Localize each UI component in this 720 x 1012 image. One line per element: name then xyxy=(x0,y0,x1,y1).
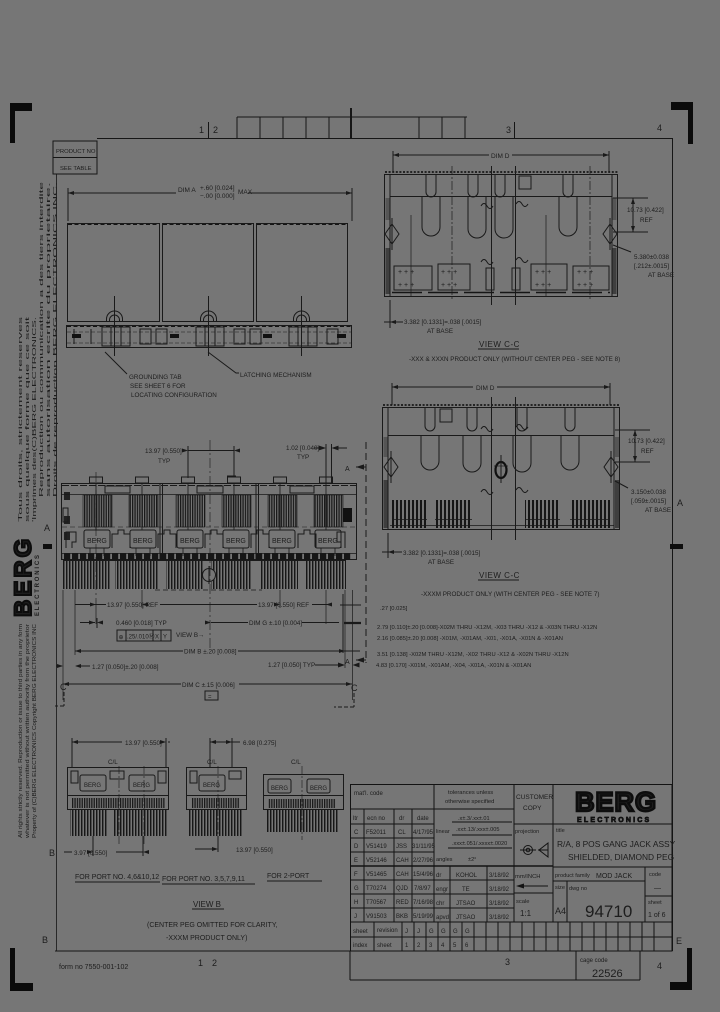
svg-text:sous quelque forme que ce: sous quelque forme que ce soit xyxy=(25,316,31,522)
svg-text:REF: REF xyxy=(641,448,654,455)
svg-text:SEE TABLE: SEE TABLE xyxy=(60,166,92,172)
svg-text:engr: engr xyxy=(436,887,448,893)
svg-text:13.97 [0.550] REF: 13.97 [0.550] REF xyxy=(107,602,158,609)
svg-text:BKB: BKB xyxy=(396,914,408,920)
svg-text:4: 4 xyxy=(657,961,662,971)
svg-text:mat'l. code: mat'l. code xyxy=(354,791,383,797)
svg-text:T70567: T70567 xyxy=(366,900,387,906)
svg-text:RED: RED xyxy=(396,900,409,906)
svg-text:7/8/97: 7/8/97 xyxy=(414,886,431,892)
svg-text:3/18/92: 3/18/92 xyxy=(489,915,510,921)
svg-text:product family: product family xyxy=(555,873,590,879)
svg-text:.x±.3/.xx±.01: .x±.3/.xx±.01 xyxy=(458,816,490,822)
svg-text:sans autorisation ecrite du: sans autorisation ecrite du proprietaire… xyxy=(46,182,52,497)
svg-text:SEE SHEET 6 FOR: SEE SHEET 6 FOR xyxy=(130,383,186,390)
svg-text:BERG: BERG xyxy=(180,538,200,545)
svg-text:J: J xyxy=(405,929,408,935)
svg-text:1:1: 1:1 xyxy=(520,909,532,918)
svg-text:DIM C ±.15 [0.006]: DIM C ±.15 [0.006] xyxy=(182,682,235,689)
svg-text:date: date xyxy=(417,816,429,822)
svg-text:10.73 [0.422]: 10.73 [0.422] xyxy=(627,207,664,214)
svg-text:VIEW B→: VIEW B→ xyxy=(176,632,204,639)
svg-text:chr: chr xyxy=(436,901,444,907)
svg-text:+ + +: + + + xyxy=(535,269,551,276)
svg-text:BERG: BERG xyxy=(87,538,107,545)
svg-text:ltr: ltr xyxy=(353,816,358,822)
svg-text:13.97 [0.550]: 13.97 [0.550] xyxy=(145,448,182,455)
svg-text:whatever is not permitted: whatever is not permitted without writte… xyxy=(25,624,31,840)
svg-text:1: 1 xyxy=(199,125,204,135)
svg-text:AT BASE: AT BASE xyxy=(648,272,674,279)
svg-text:=: = xyxy=(208,695,212,701)
svg-text:3.97 [0.550]: 3.97 [0.550] xyxy=(74,850,108,857)
svg-text:ELECTRONICS: ELECTRONICS xyxy=(35,553,41,616)
svg-text:sheet: sheet xyxy=(648,900,662,906)
svg-text:1.27 [0.050]±.20 [0.008]: 1.27 [0.050]±.20 [0.008] xyxy=(92,664,159,671)
svg-text:2.79 [0.110]±.20 [0.008]-X02M: 2.79 [0.110]±.20 [0.008]-X02M THRU -X12M… xyxy=(377,625,597,631)
svg-text:1 of 6: 1 of 6 xyxy=(648,912,666,919)
svg-text:J: J xyxy=(417,929,420,935)
svg-text:C: C xyxy=(60,682,67,692)
svg-text:title: title xyxy=(556,828,565,834)
svg-text:FOR PORT NO. 3,5,7,9,11: FOR PORT NO. 3,5,7,9,11 xyxy=(162,876,245,883)
svg-text:dwg no: dwg no xyxy=(569,886,587,892)
svg-text:Reproduction ou communicatio: Reproduction ou communication a des tier… xyxy=(39,182,45,497)
svg-text:F52011: F52011 xyxy=(366,830,387,836)
svg-text:2/27/96: 2/27/96 xyxy=(413,858,434,864)
svg-text:22526: 22526 xyxy=(592,968,623,980)
svg-text:3/18/92: 3/18/92 xyxy=(489,873,510,879)
svg-text:All rights strictly reserve: All rights strictly reserved. Reproducti… xyxy=(18,623,24,838)
svg-text:sheet: sheet xyxy=(377,943,392,949)
svg-text:BERG: BERG xyxy=(203,783,220,789)
svg-text:⊕: ⊕ xyxy=(119,635,124,641)
svg-text:DIM A: DIM A xyxy=(178,187,196,194)
svg-text:C/L: C/L xyxy=(207,759,217,766)
svg-text:1.27 [0.050] TYP: 1.27 [0.050] TYP xyxy=(268,662,315,669)
svg-text:REF: REF xyxy=(640,217,653,224)
svg-text:H: H xyxy=(354,900,358,906)
svg-text:−.00 [0.000]: −.00 [0.000] xyxy=(200,193,235,200)
svg-text:A: A xyxy=(345,659,350,666)
svg-text:BERG: BERG xyxy=(84,783,101,789)
svg-text:V51465: V51465 xyxy=(366,872,387,878)
svg-text:10.73 [0.422]: 10.73 [0.422] xyxy=(628,438,665,445)
svg-text:3.382 [0.1331]=.038 [.0015]: 3.382 [0.1331]=.038 [.0015] xyxy=(404,319,481,326)
svg-text:G: G xyxy=(465,929,470,935)
svg-text:13.97 [0.550]: 13.97 [0.550] xyxy=(125,740,162,747)
svg-text:V52146: V52146 xyxy=(366,858,387,864)
svg-text:BERG: BERG xyxy=(318,538,338,545)
svg-text:Y: Y xyxy=(163,635,167,641)
svg-text:tolerances unless: tolerances unless xyxy=(448,790,493,796)
svg-text:+ + +: + + + xyxy=(535,282,551,289)
svg-text:SHIELDED, DIAMOND PEG: SHIELDED, DIAMOND PEG xyxy=(568,852,674,862)
svg-text:7/16/98: 7/16/98 xyxy=(413,900,434,906)
svg-text:dr: dr xyxy=(436,873,441,879)
svg-text:94710: 94710 xyxy=(585,902,632,921)
svg-text:T70274: T70274 xyxy=(366,886,387,892)
svg-text:TE: TE xyxy=(462,887,470,893)
svg-text:FOR 2-PORT: FOR 2-PORT xyxy=(267,873,310,880)
svg-text:apvd: apvd xyxy=(436,915,449,921)
svg-text:otherwise specified: otherwise specified xyxy=(445,799,494,805)
svg-text:A: A xyxy=(345,466,350,473)
svg-text:BERG: BERG xyxy=(226,538,246,545)
svg-text:ELECTRONICS: ELECTRONICS xyxy=(577,817,651,824)
svg-text:COPY: COPY xyxy=(523,805,542,812)
svg-text:V51419: V51419 xyxy=(366,844,387,850)
svg-text:F: F xyxy=(354,872,358,878)
svg-text:CUSTOMER: CUSTOMER xyxy=(516,794,553,801)
svg-text:MAX: MAX xyxy=(238,189,253,196)
svg-text:CL: CL xyxy=(398,830,406,836)
svg-text:'Imprimes des(C)BERG ELECTRO: 'Imprimes des(C)BERG ELECTRONICS. xyxy=(32,317,38,522)
svg-text:3.150±0.038: 3.150±0.038 xyxy=(631,489,666,496)
svg-text:linear: linear xyxy=(436,829,450,835)
svg-text:+.60 [0.024]: +.60 [0.024] xyxy=(200,185,235,192)
svg-text:revision: revision xyxy=(377,928,398,934)
svg-text:+ + +: + + + xyxy=(398,282,414,289)
svg-text:AT BASE: AT BASE xyxy=(428,559,454,566)
svg-text:G: G xyxy=(354,886,359,892)
svg-text:+ + +: + + + xyxy=(398,269,414,276)
svg-text:G: G xyxy=(441,929,446,935)
svg-text:G: G xyxy=(453,929,458,935)
svg-text:G: G xyxy=(429,929,434,935)
svg-text:ecn no: ecn no xyxy=(367,816,386,822)
svg-text:+ + +: + + + xyxy=(577,269,593,276)
svg-text:5.380±0.038: 5.380±0.038 xyxy=(634,254,669,261)
svg-text:B: B xyxy=(42,935,48,945)
svg-text:.xxx±.051/.xxxx±.0020: .xxx±.051/.xxxx±.0020 xyxy=(452,841,507,847)
svg-text:J: J xyxy=(354,914,357,920)
svg-text:scale: scale xyxy=(516,899,530,905)
svg-text:DIM G ±.10 [0.004]: DIM G ±.10 [0.004] xyxy=(249,620,302,627)
svg-text:BERG: BERG xyxy=(310,786,327,792)
svg-text:C: C xyxy=(354,830,359,836)
svg-text:projection: projection xyxy=(515,829,539,835)
svg-text:form no 7550-001-102: form no 7550-001-102 xyxy=(59,964,128,971)
svg-text:A: A xyxy=(44,523,50,533)
svg-text:sheet: sheet xyxy=(353,929,368,935)
svg-text:MOD JACK: MOD JACK xyxy=(596,873,633,880)
svg-text:4/17/95: 4/17/95 xyxy=(413,830,434,836)
svg-text:BERG: BERG xyxy=(272,538,292,545)
svg-text:-XXX & XXXN PRODUCT ONLY (WITH: -XXX & XXXN PRODUCT ONLY (WITHOUT CENTER… xyxy=(409,356,620,363)
svg-text:+ + +: + + + xyxy=(577,282,593,289)
svg-text:D: D xyxy=(354,844,359,850)
svg-text:C: C xyxy=(351,683,358,693)
svg-text:JTSAO: JTSAO xyxy=(456,901,476,907)
svg-text:BERG: BERG xyxy=(133,783,150,789)
svg-text:KOHOL: KOHOL xyxy=(456,873,478,879)
svg-text:+ + +: + + + xyxy=(441,269,457,276)
svg-text:Droits de reproduction BERG: Droits de reproduction BERG ELECTRONICS … xyxy=(53,182,59,497)
svg-text:—: — xyxy=(654,885,661,892)
svg-text:.25/.010Ⓜ: .25/.010Ⓜ xyxy=(127,633,155,641)
svg-text:index: index xyxy=(353,943,367,949)
svg-text:CAH: CAH xyxy=(396,872,409,878)
svg-text:B: B xyxy=(49,848,55,858)
svg-text:5/19/99: 5/19/99 xyxy=(413,914,434,920)
svg-text:1: 1 xyxy=(198,958,203,968)
svg-text:-XXXM PRODUCT ONLY): -XXXM PRODUCT ONLY) xyxy=(166,935,247,942)
svg-text:31/11/95: 31/11/95 xyxy=(412,844,436,850)
svg-text:2: 2 xyxy=(213,125,218,135)
svg-text:2: 2 xyxy=(212,958,217,968)
svg-text:A: A xyxy=(677,498,683,508)
svg-text:LATCHING MECHANISM: LATCHING MECHANISM xyxy=(240,372,312,379)
svg-text:3/18/92: 3/18/92 xyxy=(489,887,510,893)
svg-text:GROUNDING TAB: GROUNDING TAB xyxy=(129,374,182,381)
svg-text:3/18/92: 3/18/92 xyxy=(489,901,510,907)
svg-text:-XXXM PRODUCT ONLY (WITH CENTE: -XXXM PRODUCT ONLY (WITH CENTER PEG - SE… xyxy=(421,591,599,598)
svg-text:PRODUCT NO: PRODUCT NO xyxy=(56,149,96,155)
svg-text:JTSAO: JTSAO xyxy=(456,915,476,921)
svg-text:DIM B ±.20 [0.008]: DIM B ±.20 [0.008] xyxy=(184,649,237,656)
svg-text:JSS: JSS xyxy=(396,844,407,850)
svg-text:(CENTER PEG OMITTED FOR CLARIT: (CENTER PEG OMITTED FOR CLARITY, xyxy=(147,922,278,929)
svg-text:DIM D: DIM D xyxy=(491,153,510,160)
svg-text:15/4/96: 15/4/96 xyxy=(413,872,434,878)
svg-text:TYP: TYP xyxy=(158,458,170,465)
svg-text:AT BASE: AT BASE xyxy=(645,507,671,514)
svg-text:BERG: BERG xyxy=(575,787,657,817)
svg-text:.xx±.13/.xxx±.005: .xx±.13/.xxx±.005 xyxy=(456,827,499,833)
svg-text:BERG: BERG xyxy=(271,786,288,792)
svg-text:4: 4 xyxy=(657,123,662,133)
svg-text:Property of (C)BERG ELECTRON: Property of (C)BERG ELECTRONICS Copyrigh… xyxy=(32,624,38,838)
svg-text:3: 3 xyxy=(506,125,511,135)
svg-text:13.97 [0.550] REF: 13.97 [0.550] REF xyxy=(258,602,309,609)
svg-text:2.16 [0.085]±.20 [0.008] -X01M: 2.16 [0.085]±.20 [0.008] -X01M, -X01AM, … xyxy=(377,636,563,642)
svg-text:VIEW C-C: VIEW C-C xyxy=(479,340,520,349)
svg-text:Tous droits, strictement re: Tous droits, strictement reserves xyxy=(18,316,24,522)
svg-text:dr: dr xyxy=(399,816,404,822)
svg-text:[.212±.0015]: [.212±.0015] xyxy=(634,263,669,270)
svg-text:E: E xyxy=(676,936,682,946)
svg-text:QJD: QJD xyxy=(396,886,409,892)
svg-text:A4: A4 xyxy=(555,906,566,916)
svg-text:C/L: C/L xyxy=(108,759,118,766)
svg-text:mm/INCH: mm/INCH xyxy=(515,874,540,880)
svg-text:[.059±.0015]: [.059±.0015] xyxy=(631,498,666,505)
svg-text:code: code xyxy=(649,872,661,878)
svg-text:4.83 [0.170] -X01M, -X01AM, -X: 4.83 [0.170] -X01M, -X01AM, -X04, -X01A,… xyxy=(376,663,531,669)
svg-text:V91503: V91503 xyxy=(366,914,387,920)
svg-text:3: 3 xyxy=(505,957,510,967)
svg-text:angles: angles xyxy=(436,857,453,863)
svg-text:E: E xyxy=(354,858,358,864)
svg-text:3.51 [0.138] -X02M THRU -X12M,: 3.51 [0.138] -X02M THRU -X12M, -X02 THRU… xyxy=(377,652,569,658)
svg-text:BERG: BERG xyxy=(10,536,37,617)
svg-text:0.460 [0.018] TYP: 0.460 [0.018] TYP xyxy=(116,620,167,627)
svg-text:13.97 [0.550]: 13.97 [0.550] xyxy=(236,847,273,854)
svg-text:TYP: TYP xyxy=(297,454,309,461)
svg-text:DIM D: DIM D xyxy=(476,385,495,392)
svg-text:CAH: CAH xyxy=(396,858,409,864)
svg-text:VIEW C-C: VIEW C-C xyxy=(479,571,520,580)
svg-text:X: X xyxy=(155,635,159,641)
svg-text:.27 [0.025]: .27 [0.025] xyxy=(380,606,408,612)
svg-text:FOR PORT NO. 4,6&10,12: FOR PORT NO. 4,6&10,12 xyxy=(75,874,159,881)
svg-text:±2°: ±2° xyxy=(468,857,476,863)
svg-text:LOCATING CONFIGURATION: LOCATING CONFIGURATION xyxy=(131,392,217,399)
svg-text:AT BASE: AT BASE xyxy=(427,328,453,335)
svg-text:C/L: C/L xyxy=(291,759,301,766)
svg-text:3.382 [0.1331]=.038 [.0015]: 3.382 [0.1331]=.038 [.0015] xyxy=(403,550,480,557)
svg-text:+ + +: + + + xyxy=(441,282,457,289)
svg-text:VIEW B: VIEW B xyxy=(193,900,221,909)
svg-text:cage code: cage code xyxy=(580,958,608,964)
svg-text:size: size xyxy=(555,885,565,891)
svg-text:6.98 [0.275]: 6.98 [0.275] xyxy=(243,740,277,747)
svg-text:R/A, 8 POS GANG JACK ASSY: R/A, 8 POS GANG JACK ASSY xyxy=(557,839,676,849)
svg-text:BERG: BERG xyxy=(133,538,153,545)
